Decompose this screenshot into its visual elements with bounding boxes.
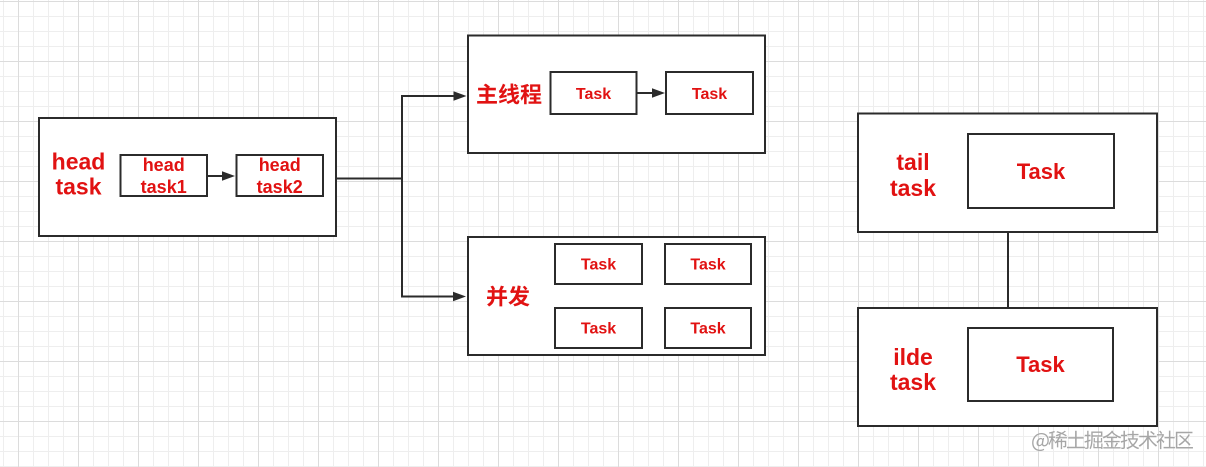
svg-text:Task: Task — [692, 86, 727, 103]
svg-text:head: head — [259, 155, 301, 175]
svg-text:tail: tail — [896, 149, 929, 175]
svg-text:task: task — [55, 174, 101, 200]
svg-text:Task: Task — [690, 257, 725, 274]
svg-text:task: task — [890, 175, 936, 201]
svg-text:Task: Task — [1016, 352, 1065, 377]
svg-text:Task: Task — [1017, 159, 1066, 184]
svg-text:head: head — [52, 149, 106, 175]
svg-text:Task: Task — [581, 257, 616, 274]
svg-text:task: task — [890, 369, 936, 395]
svg-text:task1: task1 — [141, 177, 187, 197]
svg-text:task2: task2 — [257, 177, 303, 197]
svg-text:Task: Task — [581, 321, 616, 338]
svg-text:ilde: ilde — [893, 344, 933, 370]
svg-text:Task: Task — [576, 86, 611, 103]
svg-text:head: head — [143, 155, 185, 175]
svg-text:Task: Task — [690, 321, 725, 338]
